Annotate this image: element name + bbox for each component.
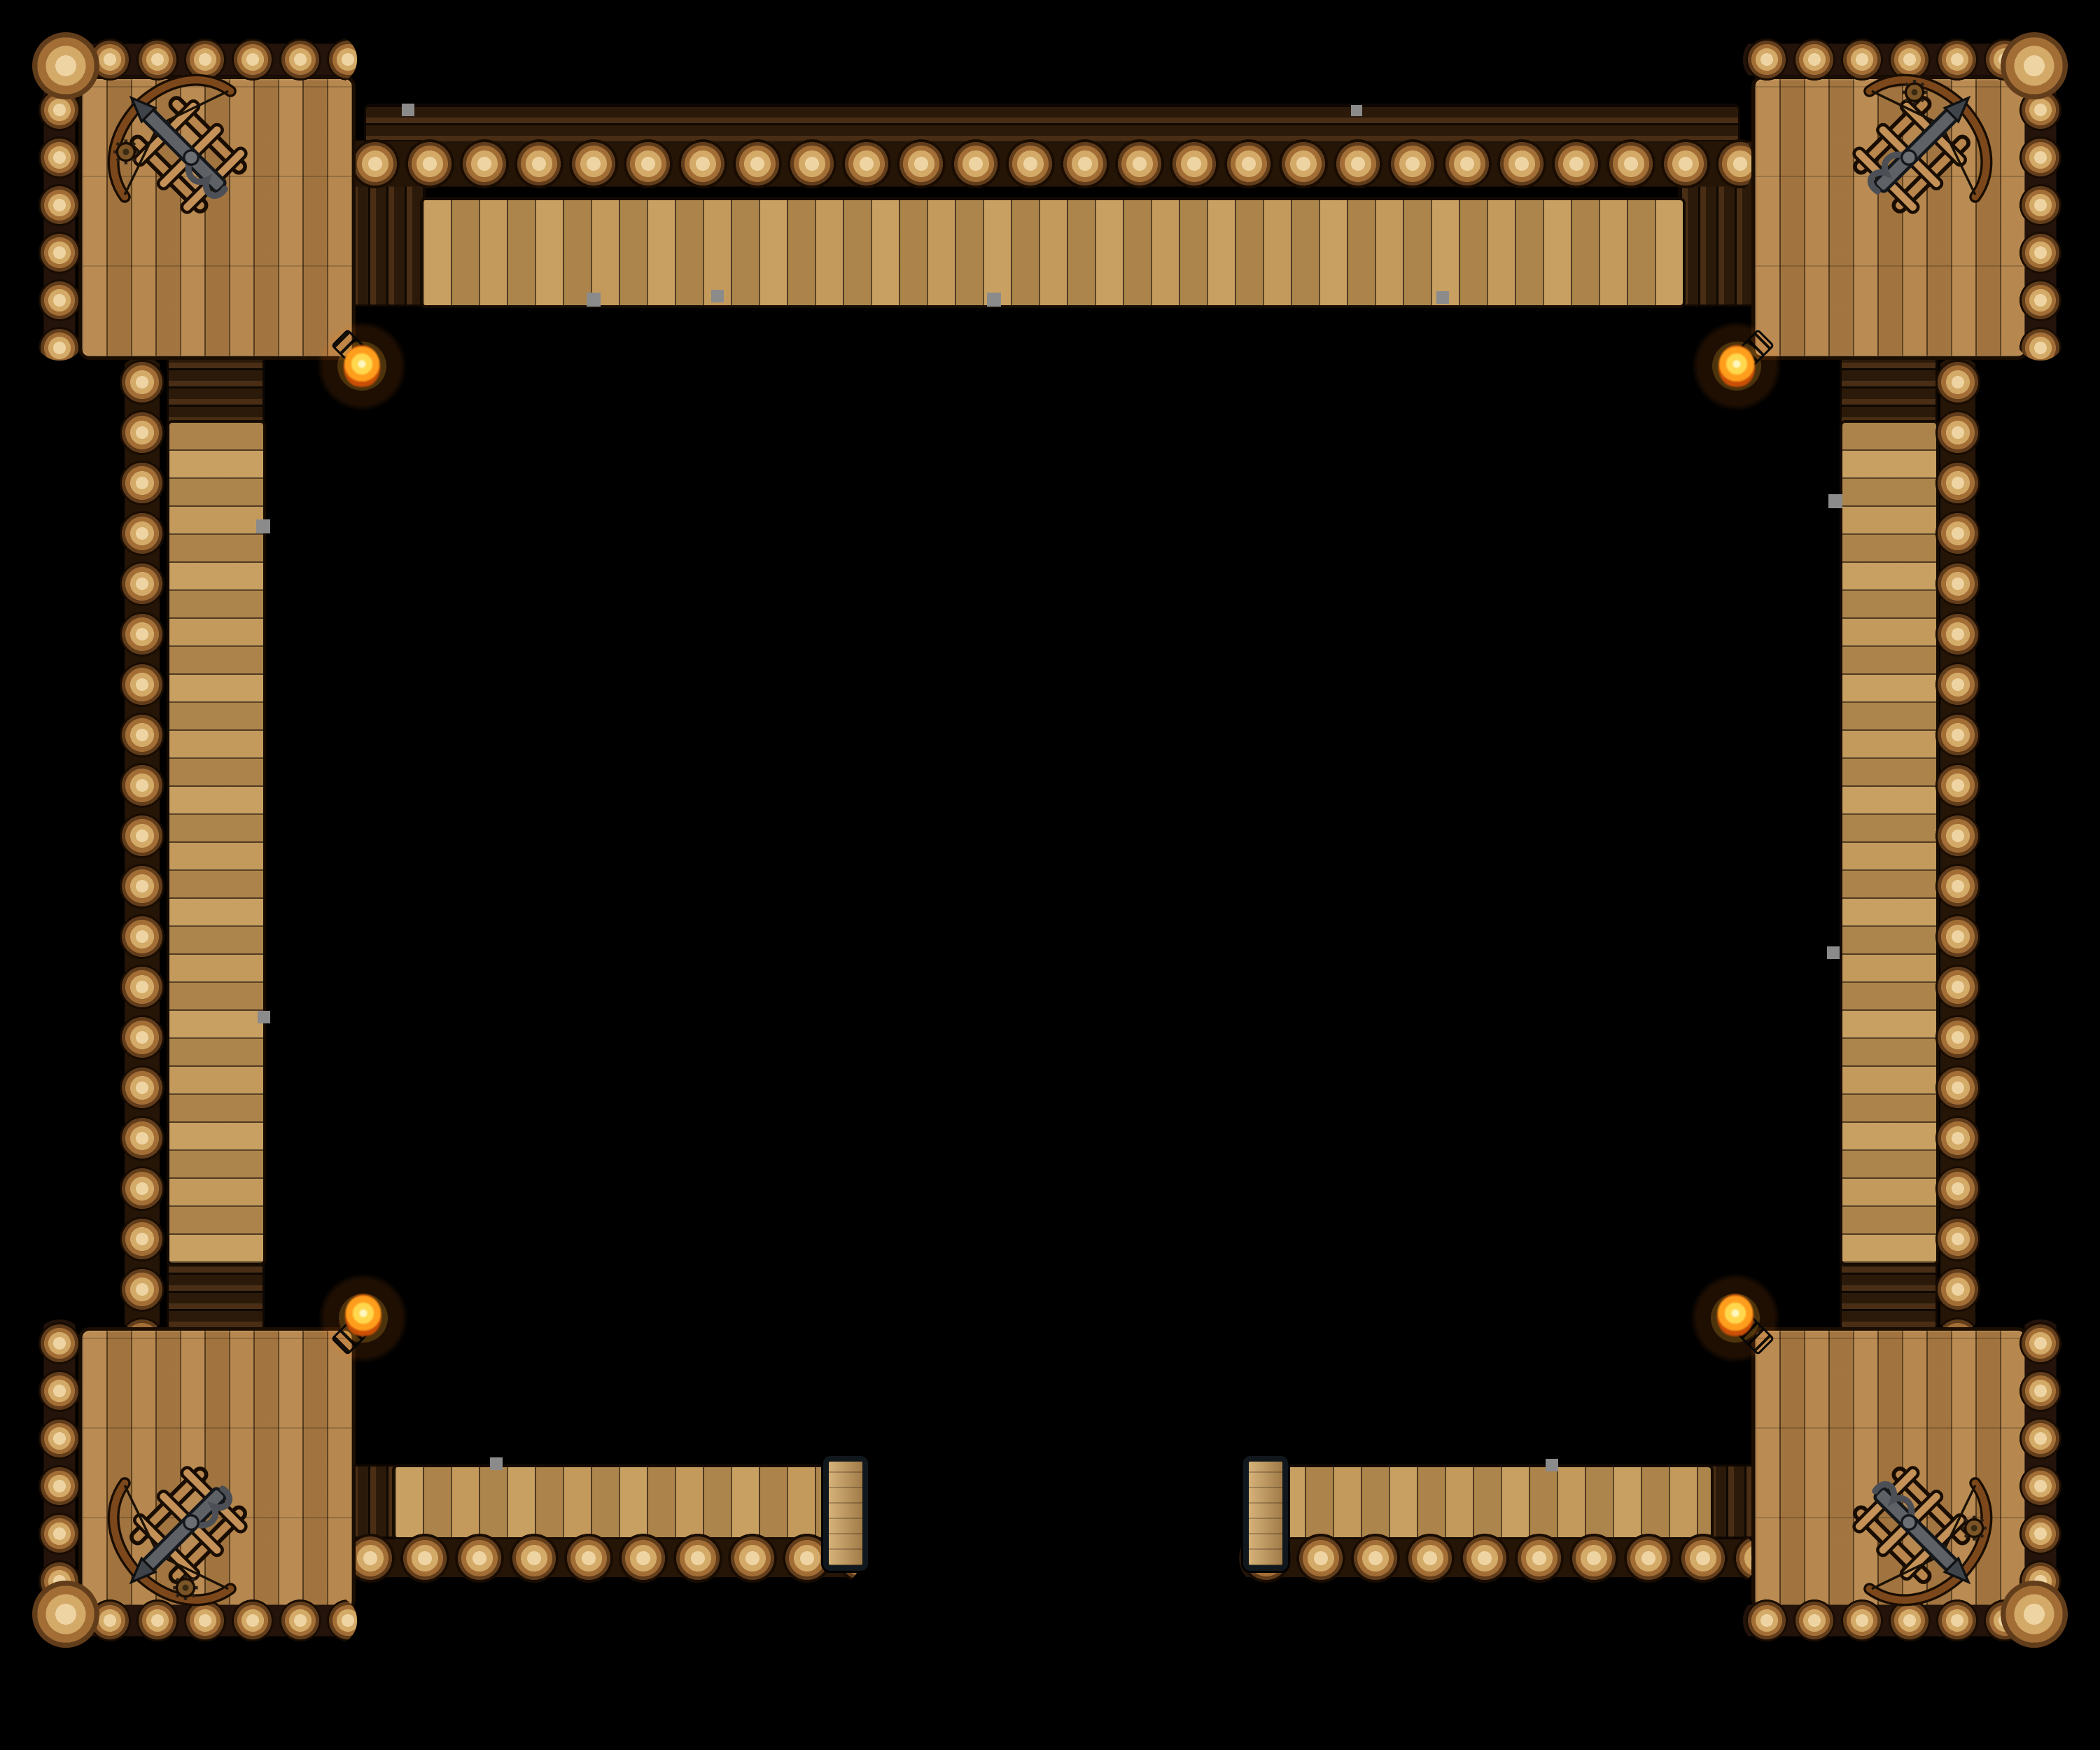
south-east-wall-log-rampart <box>1239 1530 1757 1586</box>
torch <box>1704 1284 1788 1368</box>
torch <box>1704 311 1788 395</box>
wall-connector <box>1840 354 1938 427</box>
torch-flame-icon <box>1718 345 1755 387</box>
south-gate-opening <box>857 1456 1243 1586</box>
corner-log <box>2001 1581 2068 1648</box>
corner-log <box>32 32 99 99</box>
corner-log <box>32 1581 99 1648</box>
gate-post-east <box>1243 1456 1288 1571</box>
battle-map-canvas <box>0 0 2100 1750</box>
grid-artifact <box>402 104 414 116</box>
torch-flame-icon <box>345 1294 381 1336</box>
torch-flame-icon <box>344 345 380 387</box>
grid-artifact <box>1351 105 1362 116</box>
grid-artifact <box>256 519 270 533</box>
grid-artifact <box>987 293 1001 307</box>
torch <box>311 1284 395 1368</box>
west-wall-walkway <box>167 420 266 1266</box>
grid-artifact <box>1436 291 1449 304</box>
torch <box>311 311 395 395</box>
wall-connector <box>167 1257 265 1331</box>
torch-flame-icon <box>1717 1294 1753 1336</box>
grid-artifact <box>587 293 601 307</box>
north-wall-walkway <box>420 197 1686 308</box>
south-east-wall-walkway <box>1274 1464 1714 1540</box>
east-wall-walkway <box>1840 420 1939 1266</box>
grid-artifact <box>490 1457 503 1470</box>
north-wall-log-rampart <box>348 130 1752 197</box>
south-west-wall-log-rampart <box>343 1530 861 1586</box>
grid-artifact <box>1827 946 1840 959</box>
grid-artifact <box>1828 494 1842 508</box>
corner-log <box>2001 32 2068 99</box>
grid-artifact <box>258 1011 270 1023</box>
east-wall-log-rampart <box>1932 357 1984 1331</box>
wall-connector <box>1840 1257 1938 1331</box>
wall-connector <box>167 354 265 427</box>
grid-artifact <box>711 290 724 302</box>
west-wall-log-rampart <box>116 357 168 1331</box>
south-west-wall-walkway <box>392 1464 832 1540</box>
grid-artifact <box>1546 1459 1558 1471</box>
